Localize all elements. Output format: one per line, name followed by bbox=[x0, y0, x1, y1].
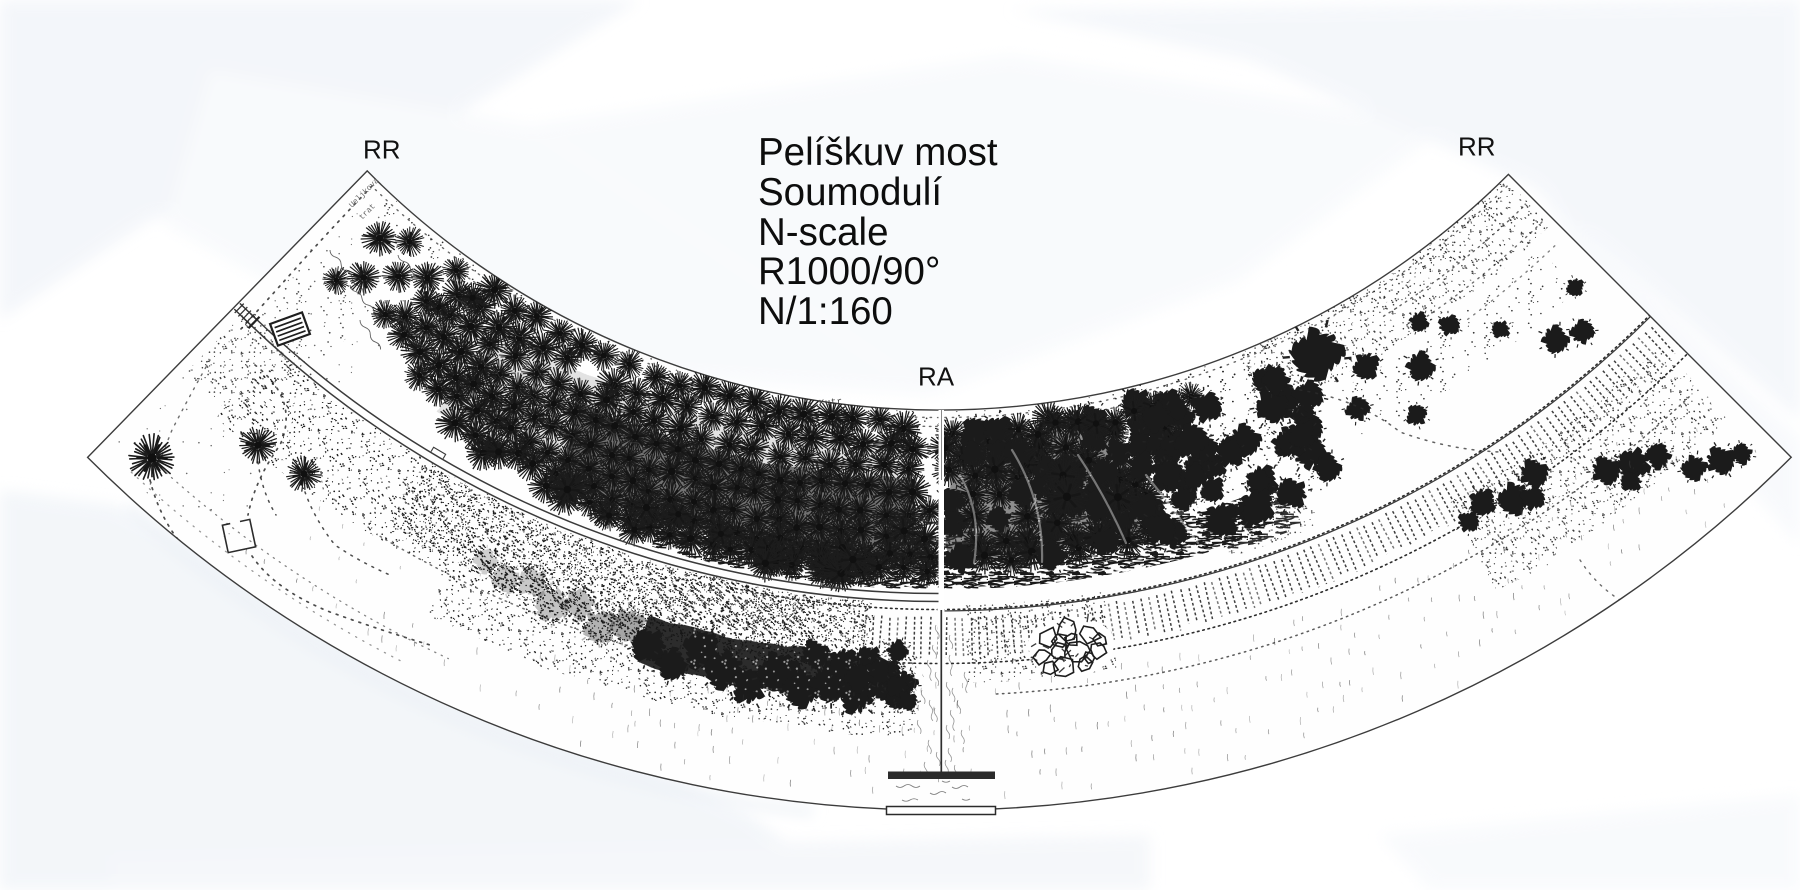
svg-text:N/1:160: N/1:160 bbox=[758, 290, 893, 333]
svg-text:RR: RR bbox=[363, 135, 401, 165]
svg-text:R1000/90°: R1000/90° bbox=[758, 250, 940, 293]
svg-text:N-scale: N-scale bbox=[758, 211, 889, 254]
svg-text:Pelíškuv most: Pelíškuv most bbox=[758, 131, 998, 174]
svg-text:RR: RR bbox=[1458, 132, 1496, 162]
svg-text:RA: RA bbox=[918, 362, 955, 392]
svg-text:Soumodulí: Soumodulí bbox=[758, 171, 942, 214]
